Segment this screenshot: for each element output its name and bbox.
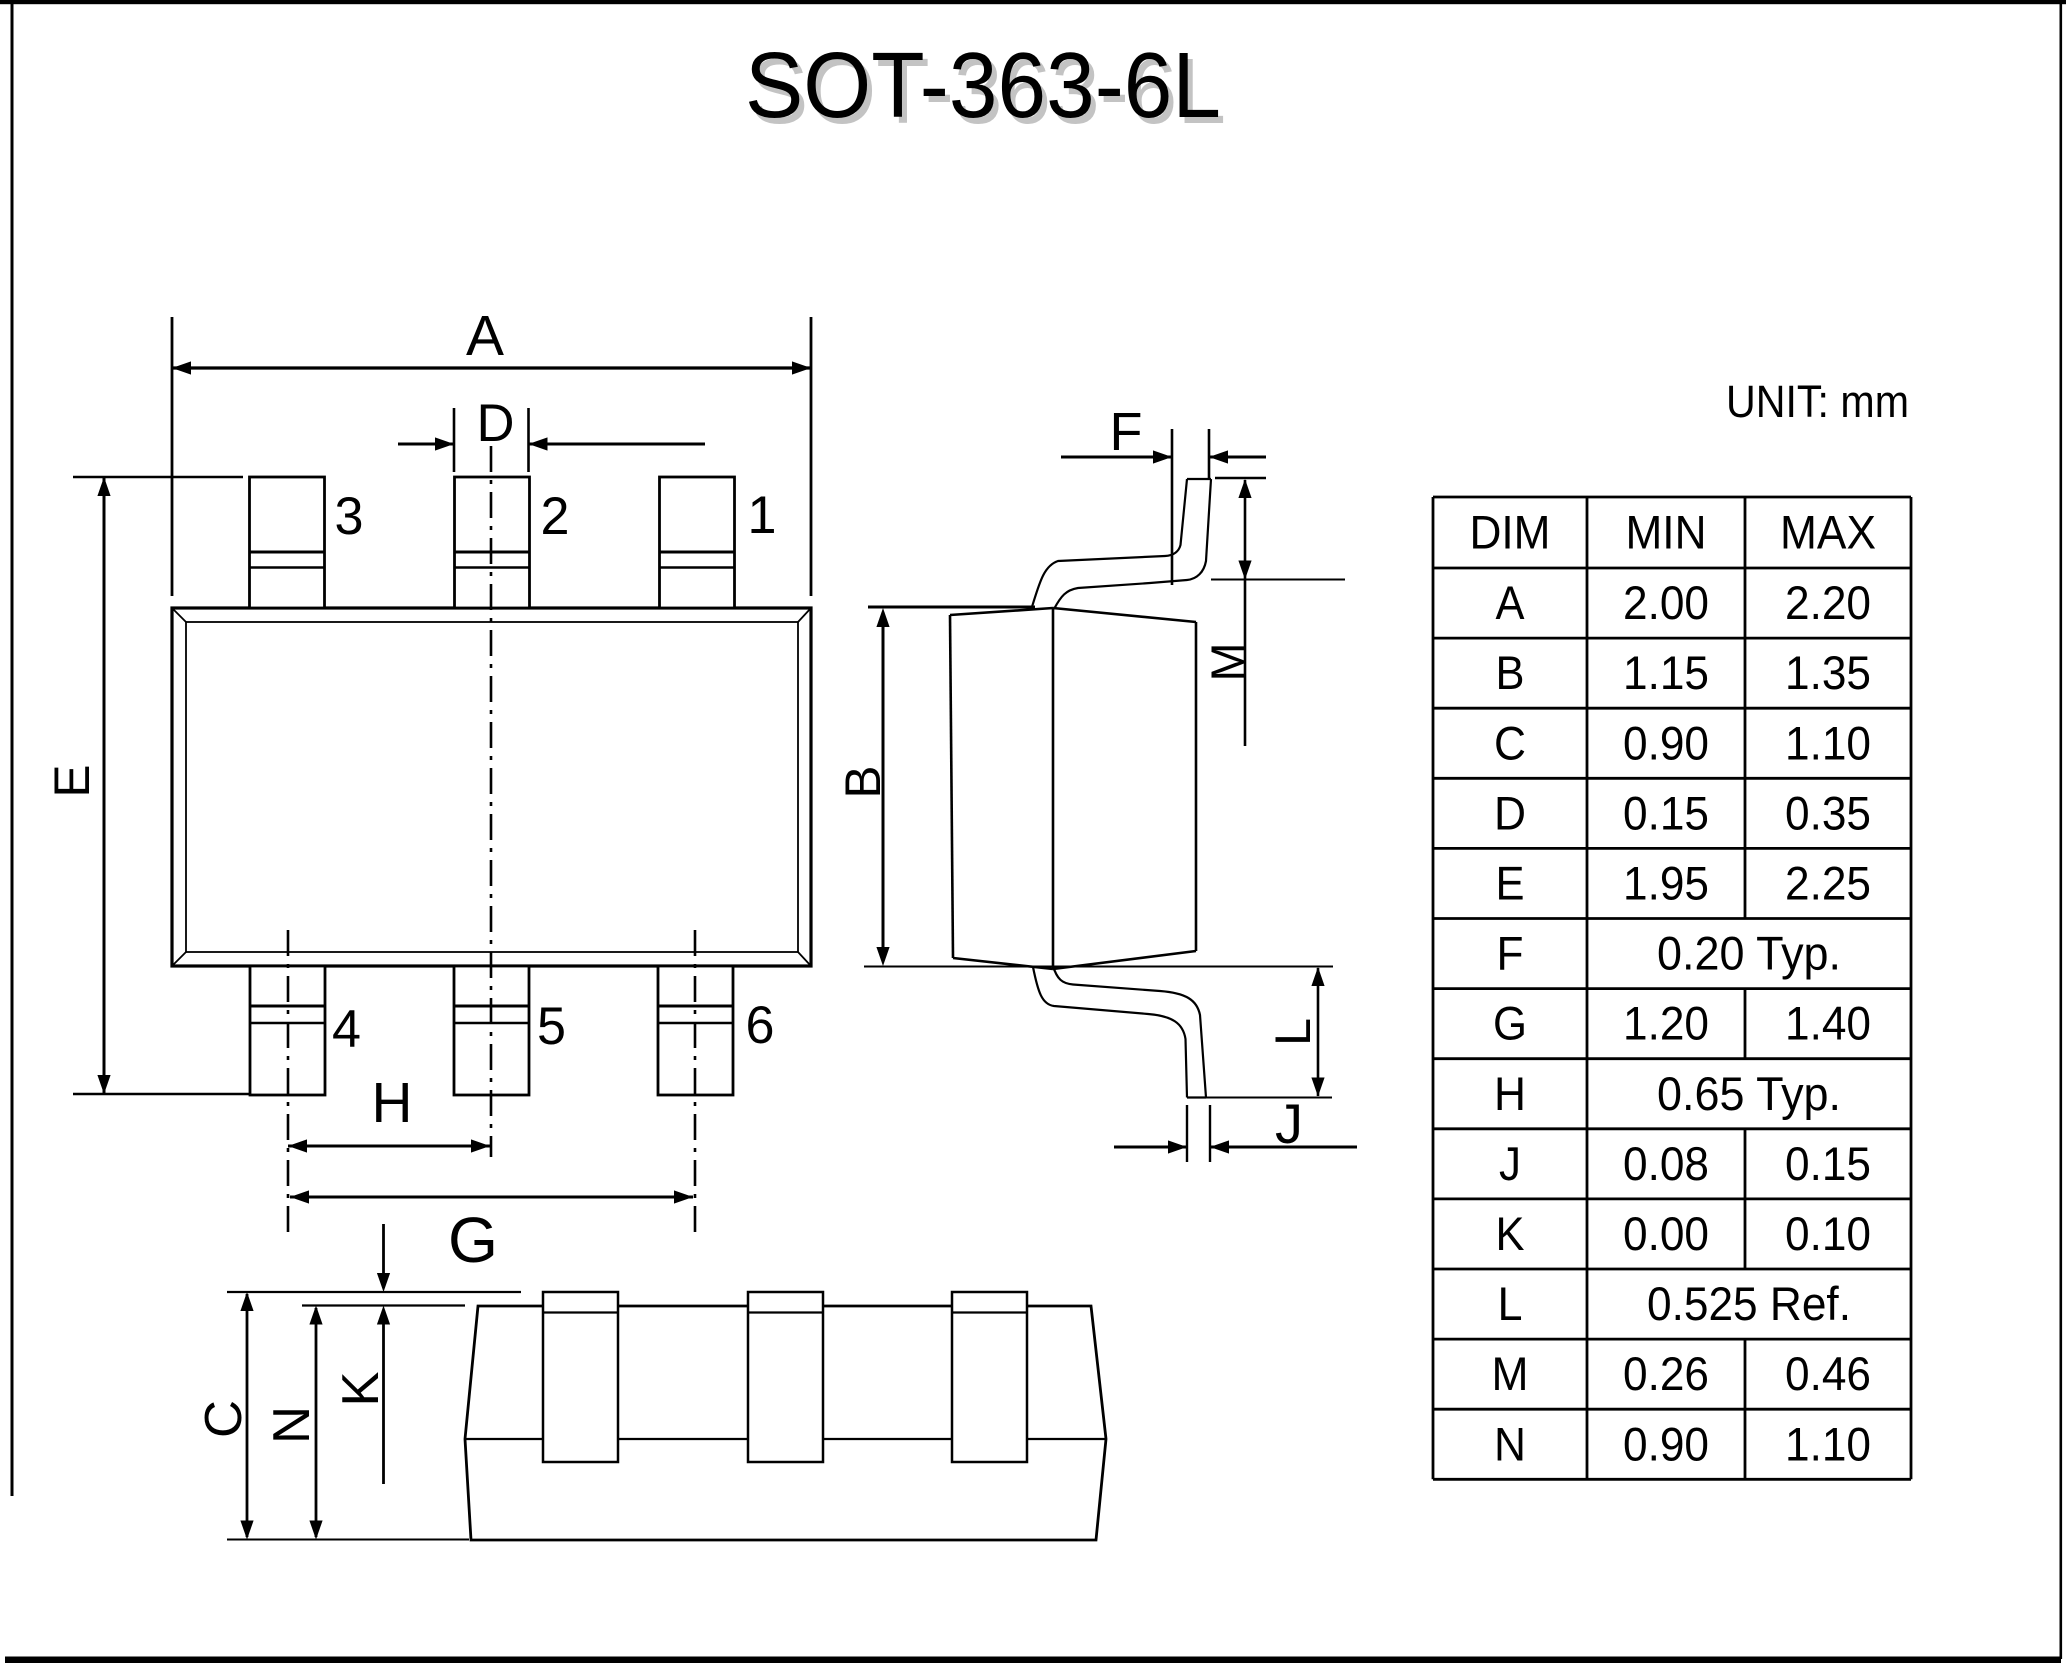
svg-text:2.25: 2.25 [1785,856,1871,909]
svg-text:1.35: 1.35 [1785,646,1871,699]
svg-text:0.26: 0.26 [1623,1347,1709,1400]
svg-text:H: H [1494,1067,1526,1120]
svg-text:0.15: 0.15 [1785,1137,1871,1190]
svg-text:0.65 Typ.: 0.65 Typ. [1657,1067,1841,1120]
svg-text:L: L [1265,1018,1321,1046]
svg-text:0.46: 0.46 [1785,1347,1871,1400]
svg-text:E: E [44,765,100,798]
svg-text:J: J [1275,1092,1303,1155]
svg-text:N: N [1494,1417,1526,1470]
svg-text:0.90: 0.90 [1623,1417,1709,1470]
svg-text:1.15: 1.15 [1623,646,1709,699]
svg-text:0.35: 0.35 [1785,786,1871,839]
svg-text:0.08: 0.08 [1623,1137,1709,1190]
svg-text:G: G [1493,997,1527,1050]
svg-text:F: F [1497,927,1524,980]
svg-text:E: E [1496,856,1525,909]
svg-text:1.10: 1.10 [1785,716,1871,769]
svg-text:0.90: 0.90 [1623,716,1709,769]
svg-text:2.00: 2.00 [1623,576,1709,629]
svg-text:D: D [1494,786,1526,839]
svg-text:J: J [1499,1137,1521,1190]
svg-text:K: K [332,1371,390,1406]
svg-text:5: 5 [537,997,566,1056]
svg-text:A: A [1496,576,1526,629]
svg-text:B: B [835,766,891,799]
svg-text:0.00: 0.00 [1623,1207,1709,1260]
svg-text:UNIT: mm: UNIT: mm [1726,376,1909,427]
svg-text:0.10: 0.10 [1785,1207,1871,1260]
svg-text:2: 2 [541,487,570,546]
svg-text:MAX: MAX [1780,506,1876,559]
svg-text:1.20: 1.20 [1623,997,1709,1050]
svg-text:1.95: 1.95 [1623,856,1709,909]
svg-text:N: N [263,1406,321,1444]
svg-text:M: M [1492,1347,1529,1400]
svg-text:1.10: 1.10 [1785,1417,1871,1470]
svg-text:C: C [1494,716,1526,769]
svg-text:2.20: 2.20 [1785,576,1871,629]
svg-text:L: L [1498,1277,1523,1330]
svg-text:D: D [477,394,515,453]
svg-text:SOT-363-6L: SOT-363-6L [745,33,1221,137]
svg-text:G: G [448,1204,498,1276]
svg-text:M: M [1201,643,1254,682]
svg-text:6: 6 [746,996,775,1055]
svg-text:DIM: DIM [1470,506,1551,559]
svg-text:K: K [1496,1207,1525,1260]
svg-text:B: B [1496,646,1525,699]
svg-text:MIN: MIN [1626,506,1707,559]
svg-text:H: H [372,1071,413,1135]
svg-text:4: 4 [332,1000,361,1059]
svg-text:1.40: 1.40 [1785,997,1871,1050]
svg-text:F: F [1110,402,1143,462]
svg-text:3: 3 [335,487,364,546]
svg-text:1: 1 [748,486,777,545]
svg-text:A: A [466,304,504,368]
svg-text:0.15: 0.15 [1623,786,1709,839]
svg-text:0.525 Ref.: 0.525 Ref. [1647,1277,1851,1330]
svg-text:C: C [195,1400,253,1438]
svg-text:0.20 Typ.: 0.20 Typ. [1657,927,1841,980]
